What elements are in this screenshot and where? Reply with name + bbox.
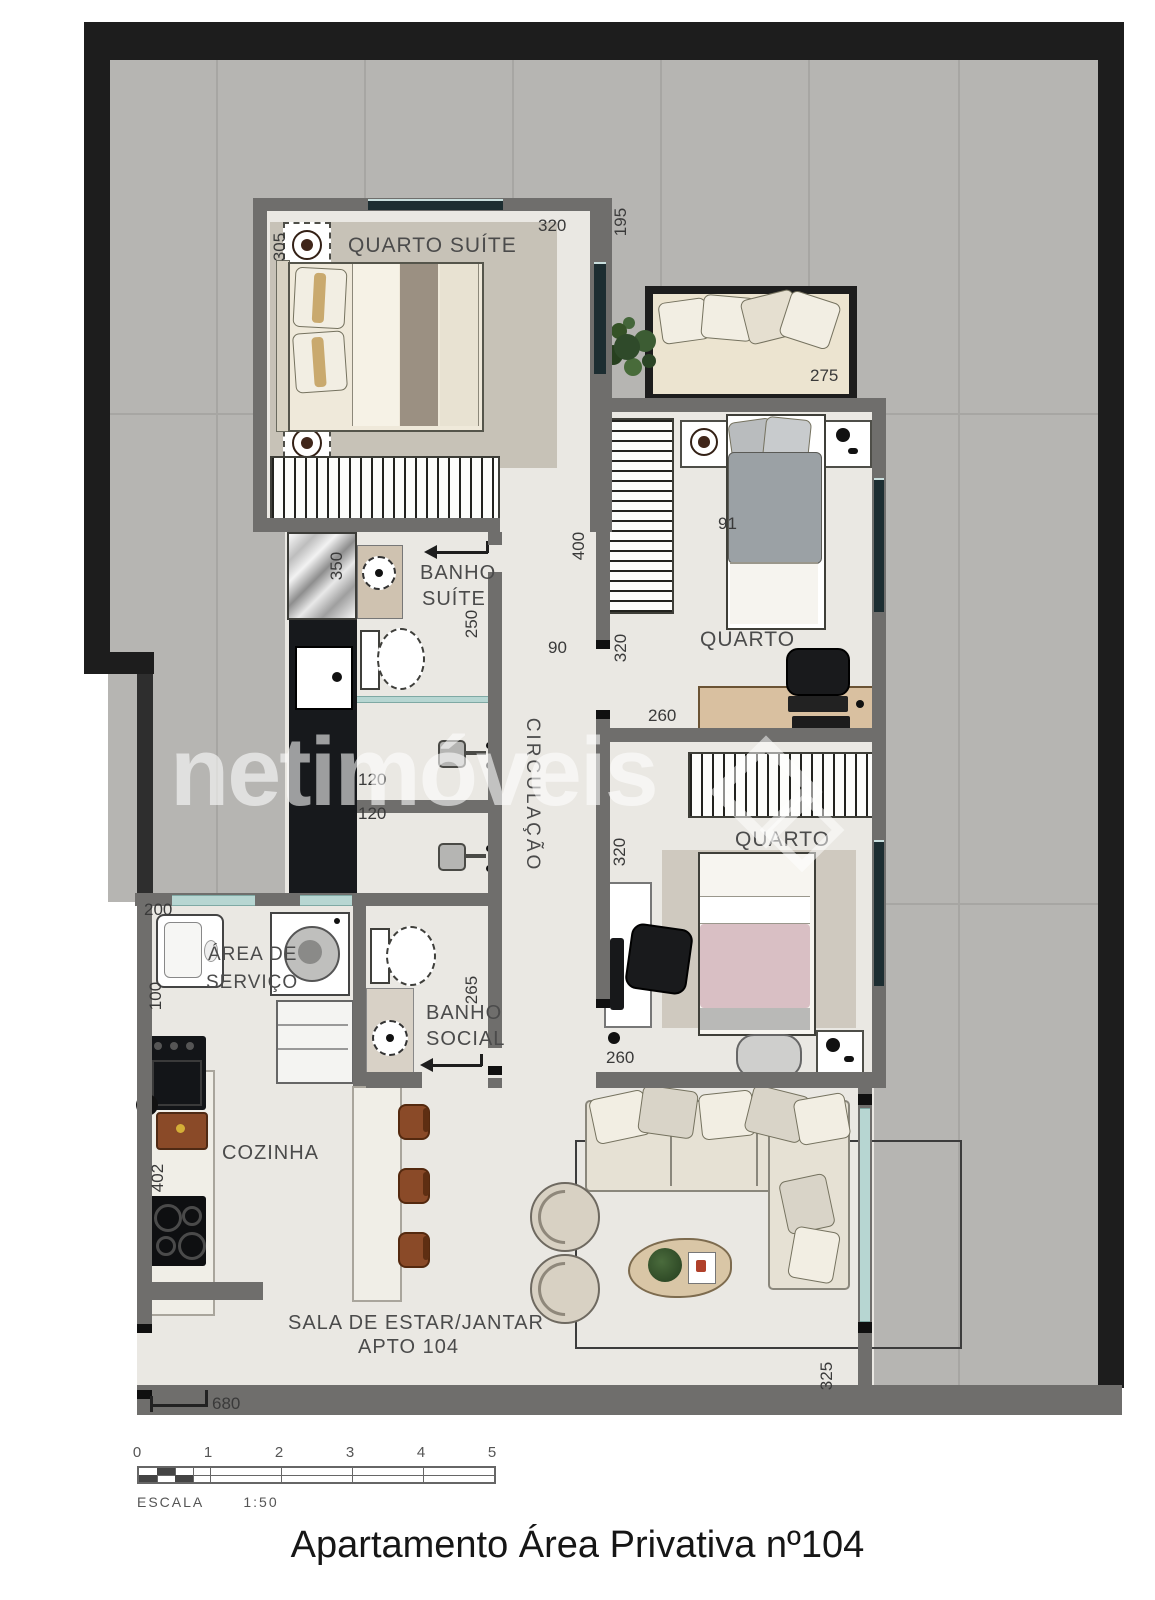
living-window-east (860, 1108, 870, 1322)
suite-lamp-top-icon (292, 230, 322, 260)
scale-label-text: ESCALA (137, 1494, 203, 1510)
label-sala-2: APTO 104 (358, 1336, 459, 1359)
suite-pillow-1 (292, 267, 347, 330)
dim-325: 325 (819, 1346, 835, 1406)
floor-plan-page: QUARTO SUÍTE BANHO SUÍTE CIRCULAÇÃO QUAR… (0, 0, 1155, 1600)
suite-window-east (594, 262, 606, 374)
bedroom1-nightstand-item (836, 428, 850, 442)
scale-tick-2: 2 (269, 1444, 289, 1461)
suite-lamp-bottom-icon (292, 428, 322, 458)
suite-wall-west (253, 198, 267, 532)
scale-ratio: 1:50 (243, 1494, 278, 1510)
sofa-pillow-2 (637, 1084, 699, 1139)
cap-bedroom2-door (596, 999, 610, 1008)
shower-2-icon (438, 843, 466, 871)
bath-east-wall-a (488, 532, 502, 545)
label-banho-social-2: SOCIAL (426, 1028, 505, 1051)
cap-entry-a (137, 1324, 152, 1333)
kitchen-island (352, 1086, 402, 1302)
dim-260-bedroom2: 260 (606, 1048, 634, 1068)
label-cozinha: COZINHA (222, 1142, 319, 1165)
dim-320-corridor: 320 (613, 618, 629, 678)
dim-195: 195 (613, 192, 629, 252)
bedroom1-sheet (730, 562, 818, 624)
outer-wall-left-lower (137, 674, 153, 896)
sofa-pillow-5 (792, 1092, 851, 1146)
service-window-2 (300, 895, 352, 906)
scale-bar (137, 1466, 496, 1484)
bedroom2-duvet-gray (700, 1008, 810, 1030)
bath-east-wall-c (488, 1078, 502, 1088)
scale-tick-3: 3 (340, 1444, 360, 1461)
kitchen-stub-wall (137, 1282, 263, 1300)
label-area-servico-2: SERVIÇO (206, 972, 298, 994)
bedroom1-mouse (856, 700, 864, 708)
bedroom2-chair (624, 922, 695, 996)
coffee-table (628, 1238, 732, 1298)
dim-200: 200 (144, 900, 172, 920)
bedroom1-keyboard (788, 696, 848, 712)
entry-dim-tick-a (150, 1396, 153, 1412)
cap-bedroom1-door-a (596, 640, 610, 649)
bedroom1-wall-north (596, 398, 886, 412)
dim-400: 400 (571, 516, 587, 576)
bedroom1-lamp-icon (690, 428, 718, 456)
scale-tick-1: 1 (198, 1444, 218, 1461)
armchair-1 (530, 1182, 600, 1252)
dim-91: 91 (718, 514, 737, 534)
dim-402: 402 (150, 1148, 166, 1208)
corridor-mirror-cabinet (287, 532, 357, 620)
bottom-wall (137, 1385, 1122, 1415)
dim-250: 250 (464, 594, 480, 654)
page-title: Apartamento Área Privativa nº104 (0, 1524, 1155, 1567)
bedroom2-lamp-icon (826, 1038, 840, 1052)
suite-wall-south (253, 518, 500, 532)
dim-90: 90 (548, 638, 567, 658)
entry-dim-line (150, 1404, 208, 1407)
scale-tick-5: 5 (482, 1444, 502, 1461)
social-wall-south-a (366, 1072, 422, 1088)
label-quarto-1: QUARTO (700, 628, 795, 652)
dim-680: 680 (212, 1394, 240, 1414)
outer-wall-right (1098, 22, 1124, 1388)
outer-wall-top (84, 22, 1124, 60)
suite-bed-sheet (352, 264, 399, 426)
bedroom2-sheet-band (700, 896, 810, 924)
bedroom2-nightstand-item (844, 1056, 854, 1062)
suite-window-north (368, 199, 503, 210)
service-social-divider (353, 906, 366, 1086)
corridor-counter-sink (295, 646, 353, 710)
service-window-1 (172, 895, 255, 906)
bedroom1-nightstand-item2 (848, 448, 858, 454)
bedroom2-monitor (610, 938, 624, 1010)
bedroom1-duvet (728, 452, 822, 564)
banho-suite-sink (362, 556, 396, 590)
bedroom2-wall-south (596, 1072, 886, 1088)
label-banho-suite-1: BANHO (420, 562, 496, 585)
label-sala-1: SALA DE ESTAR/JANTAR (288, 1312, 544, 1335)
banho-suite-toilet-bowl (377, 628, 425, 690)
terrace-plant-icon (614, 334, 640, 360)
cap-living-window-a (858, 1094, 872, 1105)
bedroom1-window-east (874, 478, 884, 612)
outer-wall-left-step (84, 652, 154, 674)
dim-350: 350 (329, 536, 345, 596)
bedroom1-chair (786, 648, 850, 696)
dim-265: 265 (464, 960, 480, 1020)
dim-275: 275 (810, 366, 838, 386)
island-stool-3 (398, 1232, 430, 1268)
bedroom2-desk-item (608, 1032, 620, 1044)
dim-320-suite: 320 (538, 216, 566, 236)
banho-social-toilet-bowl (386, 926, 436, 986)
outer-wall-left (84, 22, 110, 674)
scale-tick-0: 0 (127, 1444, 147, 1461)
fridge (276, 1000, 354, 1084)
bedroom1-wall-west-a (596, 412, 610, 648)
kitchen-sink-brown (156, 1112, 208, 1150)
dim-100: 100 (148, 966, 164, 1026)
cap-living-window-b (858, 1322, 872, 1333)
label-area-servico-1: ÁREA DE (208, 944, 297, 966)
banho-suite-door-arrow (436, 551, 488, 554)
scale-label: ESCALA 1:50 (137, 1494, 279, 1510)
bedroom2-nightstand (816, 1030, 864, 1076)
dim-320-bedroom2: 320 (612, 822, 628, 882)
scale-tick-4: 4 (411, 1444, 431, 1461)
suite-pillow-2 (292, 330, 348, 393)
suite-bed-runner (400, 264, 438, 426)
bedroom2-window-east (874, 840, 884, 986)
dim-305: 305 (272, 217, 288, 277)
bedroom1-wardrobe (608, 418, 674, 614)
label-quarto-suite: QUARTO SUÍTE (348, 234, 517, 258)
watermark-text: netimóveis (170, 716, 657, 828)
bedroom1-nightstand-right (824, 420, 872, 468)
entry-dim-tick-b (205, 1390, 208, 1406)
suite-wardrobe (270, 456, 500, 520)
bedroom2-blanket-pink (700, 924, 810, 1008)
corridor-counter-faucet (332, 672, 342, 682)
cap-social-door (488, 1066, 502, 1075)
chaise-pillow-2 (787, 1225, 841, 1284)
island-stool-1 (398, 1104, 430, 1140)
island-stool-2 (398, 1168, 430, 1204)
banho-social-sink (372, 1020, 408, 1056)
banho-suite-glass (357, 696, 488, 703)
banho-social-door-arrow (432, 1064, 482, 1067)
suite-bed-foot (440, 264, 479, 426)
